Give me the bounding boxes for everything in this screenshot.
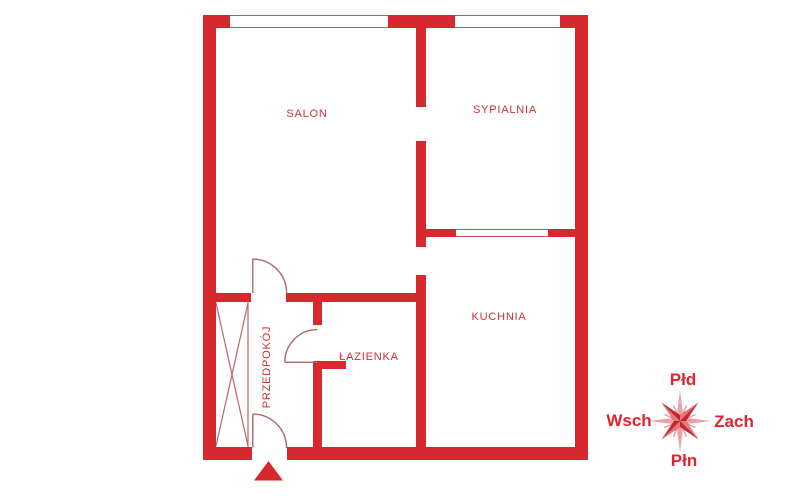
compass-label-top: Płd [670, 370, 696, 390]
compass-label-bottom: Płn [671, 451, 697, 471]
door-salon-icon [253, 259, 287, 293]
floor-plan: SALON SYPIALNIA KUCHNIA ŁAZIENKA PRZEDPO… [0, 0, 790, 500]
wardrobe-hatch-icon [216, 302, 248, 447]
room-label-salon: SALON [286, 108, 327, 120]
room-label-przedpokoj: PRZEDPOKÓJ [261, 326, 273, 409]
plan-linework [0, 0, 790, 500]
door-lazienka-icon [285, 330, 318, 363]
entrance-marker-icon [254, 461, 283, 481]
room-label-kuchnia: KUCHNIA [471, 311, 526, 323]
compass-label-left: Wsch [606, 411, 651, 431]
compass-rose-icon [649, 390, 711, 452]
compass-label-right: Zach [714, 412, 754, 432]
door-entrance-icon [253, 414, 287, 448]
room-label-sypialnia: SYPIALNIA [473, 104, 537, 116]
room-label-lazienka: ŁAZIENKA [339, 351, 399, 363]
